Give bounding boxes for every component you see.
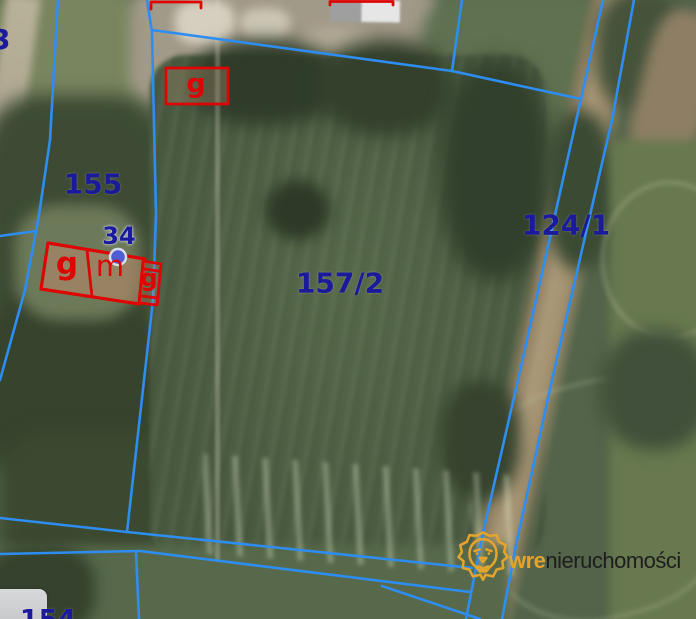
terrain-patch [600, 180, 696, 340]
terrain-patch [240, 8, 290, 40]
building-label-g-top: g [186, 69, 205, 100]
building-label-m: m [96, 249, 124, 283]
terrain-patch [0, 430, 170, 580]
satellite-imagery [0, 0, 696, 619]
terrain-patch [620, 4, 696, 177]
parcel-label-157-2: 157/2 [296, 267, 384, 300]
terrain-patch [440, 380, 520, 500]
terrain-patch [215, 0, 220, 560]
parcel-label-partial-3: 3 [0, 23, 10, 56]
terrain-patch [320, 40, 450, 135]
building-label-g-left: g [56, 246, 78, 282]
terrain-patch [175, 0, 235, 45]
terrain-patch [440, 60, 550, 280]
map-viewport[interactable]: 3 155 34 157/2 124/1 154 g g m g wrenier… [0, 0, 696, 619]
road-surface [451, 0, 651, 619]
parcel-label-155: 155 [64, 168, 122, 201]
watermark-logo: wrenieruchomości [456, 529, 681, 585]
parcel-label-154: 154 [20, 605, 76, 619]
building-label-g-annex: g [140, 264, 157, 292]
watermark-brand-suffix: nieruchomości [545, 548, 680, 573]
watermark-text: wrenieruchomości [509, 548, 681, 574]
terrain-patch [265, 180, 330, 240]
terrain-patch [545, 110, 615, 270]
terrain-patch [190, 40, 340, 125]
terrain-patch [0, 545, 510, 619]
terrain-patch [596, 0, 686, 110]
terrain-patch [0, 290, 160, 480]
terrain-patch [130, 0, 440, 110]
parcel-label-124-1: 124/1 [522, 209, 610, 242]
watermark-brand-prefix: wre [509, 548, 545, 573]
address-label-34: 34 [102, 222, 135, 250]
terrain-patch [420, 0, 615, 205]
meadow-157-2 [150, 55, 545, 560]
terrain-patch [0, 0, 150, 250]
terrain-patch [600, 330, 696, 450]
terrain-patch [298, 28, 373, 70]
building-roof [330, 0, 400, 23]
lion-icon [456, 529, 510, 585]
